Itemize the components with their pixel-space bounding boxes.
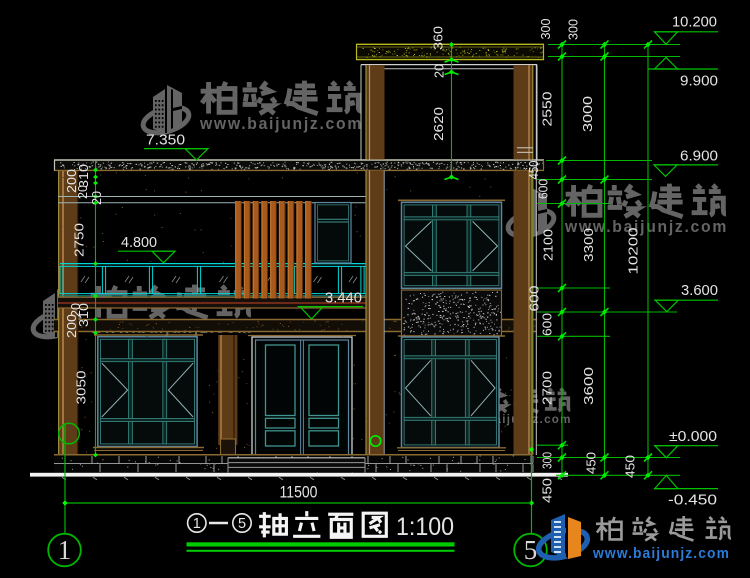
svg-text:2620: 2620 — [431, 107, 446, 141]
svg-text:600: 600 — [537, 179, 551, 199]
svg-text:6.900: 6.900 — [680, 149, 718, 165]
svg-text:10200: 10200 — [626, 228, 641, 275]
svg-text:1:100: 1:100 — [396, 513, 454, 541]
svg-text:3000: 3000 — [580, 96, 595, 132]
svg-text:2750: 2750 — [72, 223, 87, 257]
svg-text:310: 310 — [77, 303, 91, 327]
svg-text:www.baijunjz.com: www.baijunjz.com — [199, 115, 363, 133]
svg-text:2700: 2700 — [540, 371, 555, 405]
svg-text:www.baijunjz.com: www.baijunjz.com — [592, 545, 730, 562]
svg-text:7.350: 7.350 — [146, 133, 185, 149]
svg-text:1: 1 — [58, 535, 72, 565]
svg-text:5: 5 — [238, 516, 246, 532]
svg-text:300: 300 — [541, 452, 555, 469]
svg-text:200: 200 — [65, 314, 79, 338]
svg-text:450: 450 — [585, 452, 599, 474]
svg-text:5: 5 — [524, 535, 538, 565]
svg-text:9.900: 9.900 — [680, 74, 718, 90]
svg-text:2100: 2100 — [541, 229, 556, 261]
svg-text:3300: 3300 — [581, 228, 596, 262]
svg-text:11500: 11500 — [280, 484, 318, 502]
svg-text:600: 600 — [528, 285, 542, 311]
svg-text:3600: 3600 — [581, 367, 596, 405]
svg-text:360: 360 — [432, 26, 446, 50]
svg-text:3050: 3050 — [74, 371, 89, 405]
svg-text:±0.000: ±0.000 — [669, 429, 717, 445]
svg-text:20: 20 — [76, 185, 90, 199]
svg-text:450: 450 — [541, 478, 555, 503]
svg-text:450: 450 — [624, 455, 638, 478]
svg-text:1: 1 — [193, 516, 201, 532]
svg-text:20: 20 — [90, 191, 104, 205]
svg-text:310: 310 — [77, 164, 91, 188]
svg-text:4.800: 4.800 — [121, 235, 157, 251]
svg-text:20: 20 — [433, 64, 447, 78]
svg-text:600: 600 — [541, 313, 555, 336]
svg-text:-0.450: -0.450 — [668, 493, 717, 509]
svg-text:2550: 2550 — [540, 92, 555, 127]
svg-text:300: 300 — [539, 18, 553, 39]
svg-text:450: 450 — [527, 160, 541, 179]
svg-text:3.440: 3.440 — [325, 291, 362, 307]
svg-text:300: 300 — [567, 19, 581, 40]
svg-text:3.600: 3.600 — [681, 283, 718, 299]
svg-text:10.200: 10.200 — [672, 15, 717, 31]
